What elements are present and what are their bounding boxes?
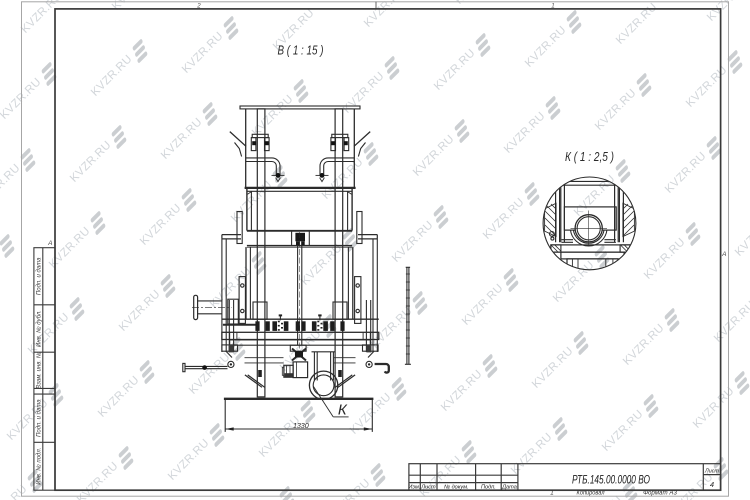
- svg-text:KVZR.RU: KVZR.RU: [733, 213, 750, 259]
- svg-text:KVZR.RU: KVZR.RU: [166, 437, 212, 483]
- svg-text:KVZR.RU: KVZR.RU: [68, 139, 114, 185]
- svg-text:Подп. и дата: Подп. и дата: [37, 399, 43, 437]
- svg-text:KVZR.RU: KVZR.RU: [362, 0, 408, 30]
- svg-text:KVZR.RU: KVZR.RU: [705, 0, 750, 24]
- svg-text:KVZR.RU: KVZR.RU: [621, 322, 667, 368]
- svg-text:1330: 1330: [293, 421, 309, 430]
- svg-text:KVZR.RU: KVZR.RU: [390, 219, 436, 265]
- svg-text:KVZR.RU: KVZR.RU: [712, 299, 750, 345]
- svg-text:KVZR.RU: KVZR.RU: [0, 248, 2, 294]
- svg-text:KVZR.RU: KVZR.RU: [663, 150, 709, 196]
- svg-text:KVZR.RU: KVZR.RU: [187, 351, 233, 397]
- svg-text:KVZR.RU: KVZR.RU: [691, 385, 737, 431]
- svg-text:KVZR.RU: KVZR.RU: [481, 196, 527, 242]
- svg-text:KVZR.RU: KVZR.RU: [460, 282, 506, 328]
- svg-text:KVZR.RU: KVZR.RU: [551, 259, 597, 305]
- svg-text:KVZR.RU: KVZR.RU: [26, 311, 72, 357]
- svg-text:KVZR.RU: KVZR.RU: [530, 345, 576, 391]
- svg-text:KVZR.RU: KVZR.RU: [0, 162, 23, 208]
- svg-text:Взам. инв. №: Взам. инв. №: [36, 351, 43, 389]
- svg-text:KVZR.RU: KVZR.RU: [75, 460, 121, 500]
- svg-text:A: A: [721, 251, 726, 258]
- svg-text:KVZR.RU: KVZR.RU: [572, 173, 618, 219]
- svg-text:К ( 1 : 2,5 ): К ( 1 : 2,5 ): [565, 150, 614, 164]
- svg-text:KVZR.RU: KVZR.RU: [117, 288, 163, 334]
- svg-text:Подп.: Подп.: [481, 485, 496, 491]
- svg-text:Инв. № подл.: Инв. № подл.: [36, 448, 43, 485]
- svg-text:KVZR.RU: KVZR.RU: [0, 483, 30, 500]
- svg-text:KVZR.RU: KVZR.RU: [96, 374, 142, 420]
- svg-text:KVZR.RU: KVZR.RU: [5, 397, 51, 443]
- svg-text:KVZR.RU: KVZR.RU: [89, 53, 135, 99]
- svg-text:KVZR.RU: KVZR.RU: [411, 133, 457, 179]
- svg-text:KVZR.RU: KVZR.RU: [138, 202, 184, 248]
- svg-text:В ( 1 : 15 ): В ( 1 : 15 ): [278, 44, 324, 58]
- svg-text:Подп. и дата: Подп. и дата: [37, 257, 43, 295]
- svg-text:KVZR.RU: KVZR.RU: [509, 431, 555, 477]
- svg-text:1: 1: [550, 490, 553, 497]
- svg-text:KVZR.RU: KVZR.RU: [684, 64, 730, 110]
- svg-text:KVZR.RU: KVZR.RU: [180, 30, 226, 76]
- svg-text:KVZR.RU: KVZR.RU: [600, 408, 646, 454]
- svg-text:A: A: [47, 240, 52, 247]
- svg-text:KVZR.RU: KVZR.RU: [614, 1, 660, 47]
- svg-text:KVZR.RU: KVZR.RU: [439, 368, 485, 414]
- svg-text:KVZR.RU: KVZR.RU: [299, 242, 345, 288]
- svg-text:KVZR.RU: KVZR.RU: [453, 0, 499, 7]
- svg-text:KVZR.RU: KVZR.RU: [19, 0, 65, 36]
- svg-text:Лист: Лист: [704, 468, 719, 474]
- svg-text:Копировал: Копировал: [577, 490, 605, 497]
- svg-text:Лист: Лист: [420, 485, 436, 491]
- svg-text:РТБ.145.00.0000 ВО: РТБ.145.00.0000 ВО: [572, 472, 650, 486]
- svg-text:KVZR.RU: KVZR.RU: [502, 110, 548, 156]
- svg-text:KVZR.RU: KVZR.RU: [369, 305, 415, 351]
- svg-text:К: К: [338, 402, 348, 419]
- svg-text:№ докум.: № докум.: [444, 485, 469, 491]
- svg-text:Изм.: Изм.: [408, 485, 420, 491]
- svg-text:KVZR.RU: KVZR.RU: [523, 24, 569, 70]
- svg-text:Формат А3: Формат А3: [643, 490, 677, 497]
- svg-text:Дата: Дата: [501, 485, 517, 491]
- svg-text:Инв. № дубл.: Инв. № дубл.: [36, 310, 43, 347]
- svg-text:KVZR.RU: KVZR.RU: [208, 265, 254, 311]
- svg-text:KVZR.RU: KVZR.RU: [642, 236, 688, 282]
- svg-text:KVZR.RU: KVZR.RU: [432, 47, 478, 93]
- svg-text:KVZR.RU: KVZR.RU: [159, 116, 205, 162]
- svg-text:4: 4: [710, 480, 714, 489]
- svg-text:KVZR.RU: KVZR.RU: [593, 87, 639, 133]
- svg-text:KVZR.RU: KVZR.RU: [418, 454, 464, 500]
